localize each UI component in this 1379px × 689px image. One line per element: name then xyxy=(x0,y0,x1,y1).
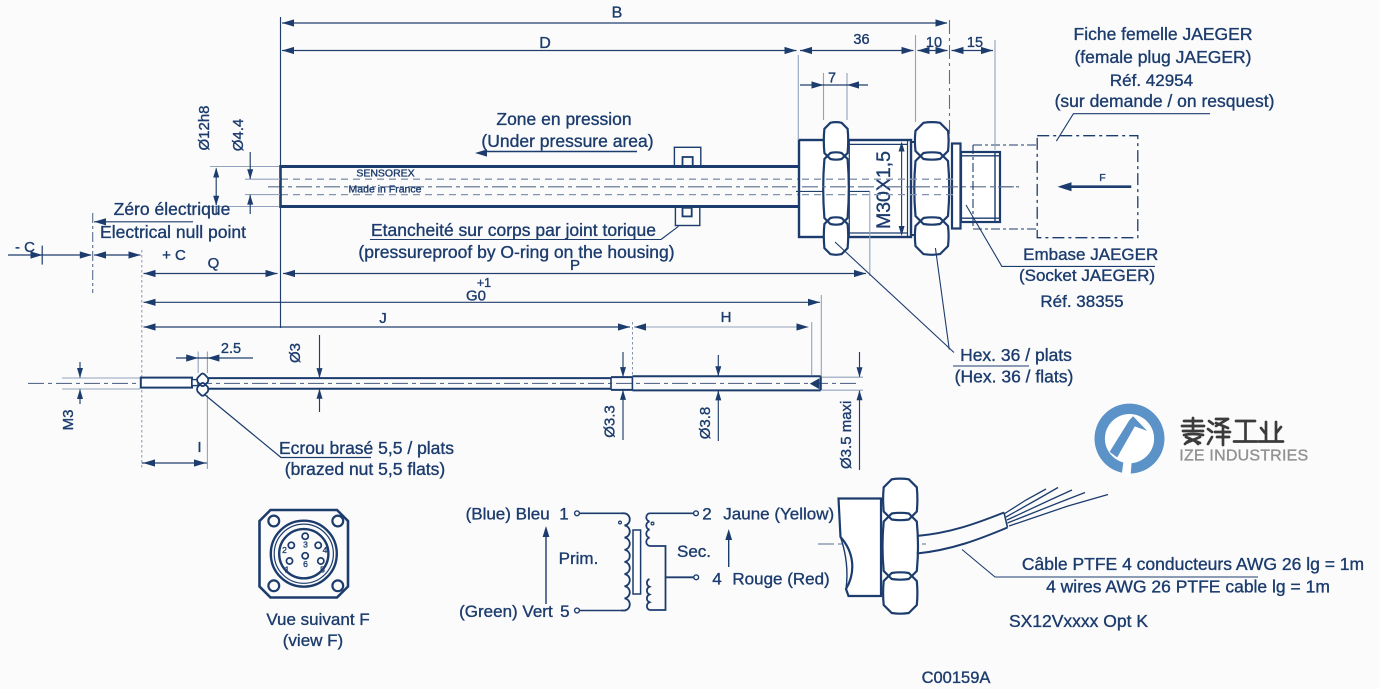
svg-text:Réf. 38355: Réf. 38355 xyxy=(1040,292,1123,311)
svg-text:SENSOREX: SENSOREX xyxy=(356,168,414,180)
svg-text:4: 4 xyxy=(712,570,721,589)
svg-text:Ø3.3: Ø3.3 xyxy=(602,405,619,438)
svg-text:M30X1,5: M30X1,5 xyxy=(873,151,895,229)
svg-text:7: 7 xyxy=(828,71,836,87)
svg-text:Câble PTFE 4 conducteurs AWG 2: Câble PTFE 4 conducteurs AWG 26 lg = 1m xyxy=(1022,554,1364,574)
svg-text:Rouge (Red): Rouge (Red) xyxy=(732,570,829,589)
svg-text:3: 3 xyxy=(303,540,308,550)
svg-text:Ø4.4: Ø4.4 xyxy=(230,119,247,152)
svg-text:D: D xyxy=(539,35,551,52)
svg-text:(brazed nut 5,5 flats): (brazed nut 5,5 flats) xyxy=(285,459,446,479)
svg-text:Fiche femelle JAEGER: Fiche femelle JAEGER xyxy=(1074,24,1253,44)
svg-text:(Blue) Bleu: (Blue) Bleu xyxy=(466,505,550,524)
svg-text:(view F): (view F) xyxy=(283,631,343,650)
svg-text:F: F xyxy=(1099,172,1105,184)
svg-text:Made in France: Made in France xyxy=(349,184,422,196)
svg-text:Jaune (Yellow): Jaune (Yellow) xyxy=(723,505,834,524)
svg-text:Q: Q xyxy=(208,255,220,272)
svg-text:I: I xyxy=(197,439,201,456)
svg-text:5: 5 xyxy=(560,602,569,621)
svg-text:2.5: 2.5 xyxy=(221,341,241,357)
svg-text:4 wires AWG 26 PTFE cable lg =: 4 wires AWG 26 PTFE cable lg = 1m xyxy=(1046,577,1330,597)
svg-text:G0: G0 xyxy=(466,288,486,305)
svg-text:Ø3.8: Ø3.8 xyxy=(697,407,714,440)
svg-text:H: H xyxy=(721,309,732,326)
svg-text:(pressureproof by O-ring on th: (pressureproof by O-ring on the housing) xyxy=(358,242,674,262)
svg-text:1: 1 xyxy=(285,565,290,575)
svg-text:J: J xyxy=(379,310,387,327)
svg-text:(Socket JAEGER): (Socket JAEGER) xyxy=(1019,266,1155,285)
svg-text:36: 36 xyxy=(853,32,869,48)
svg-text:C00159A: C00159A xyxy=(922,669,991,687)
svg-text:(Green) Vert: (Green) Vert xyxy=(459,602,553,621)
svg-text:Zéro électrique: Zéro électrique xyxy=(114,199,231,219)
svg-text:15: 15 xyxy=(967,35,983,51)
svg-text:2: 2 xyxy=(282,545,287,555)
svg-text:Réf. 42954: Réf. 42954 xyxy=(1110,71,1193,90)
svg-text:SX12Vxxxx Opt K: SX12Vxxxx Opt K xyxy=(1009,611,1148,631)
svg-text:Sec.: Sec. xyxy=(677,542,711,561)
svg-text:4: 4 xyxy=(323,545,328,555)
svg-text:Ø12h8: Ø12h8 xyxy=(196,105,213,150)
svg-text:1: 1 xyxy=(559,505,568,524)
svg-text:IZE INDUSTRIES: IZE INDUSTRIES xyxy=(1179,448,1308,465)
svg-text:Ø3: Ø3 xyxy=(287,343,304,363)
svg-text:5: 5 xyxy=(320,565,325,575)
svg-text:6: 6 xyxy=(303,559,308,569)
svg-text:(female plug JAEGER): (female plug JAEGER) xyxy=(1074,47,1251,67)
svg-text:Ø3.5 maxi: Ø3.5 maxi xyxy=(838,401,855,469)
svg-text:Embase JAEGER: Embase JAEGER xyxy=(1023,245,1158,264)
svg-text:2: 2 xyxy=(702,505,711,524)
svg-text:+ C: + C xyxy=(162,247,186,264)
svg-text:(Hex. 36 / flats): (Hex. 36 / flats) xyxy=(955,367,1074,387)
svg-text:10: 10 xyxy=(926,35,942,51)
svg-text:Ecrou brasé 5,5 / plats: Ecrou brasé 5,5 / plats xyxy=(279,438,454,458)
svg-text:Zone en pression: Zone en pression xyxy=(496,109,631,129)
svg-text:M3: M3 xyxy=(60,410,77,431)
svg-text:Hex. 36 / plats: Hex. 36 / plats xyxy=(960,345,1072,365)
svg-text:Electrical null point: Electrical null point xyxy=(100,222,246,242)
svg-text:(Under pressure area): (Under pressure area) xyxy=(481,131,653,151)
svg-text:Etancheité sur corps par joint: Etancheité sur corps par joint torique xyxy=(371,220,656,240)
svg-text:B: B xyxy=(612,5,623,22)
svg-text:(sur demande / on resquest): (sur demande / on resquest) xyxy=(1055,91,1275,111)
svg-text:Vue suivant F: Vue suivant F xyxy=(266,610,369,629)
svg-text:Prim.: Prim. xyxy=(559,549,599,568)
